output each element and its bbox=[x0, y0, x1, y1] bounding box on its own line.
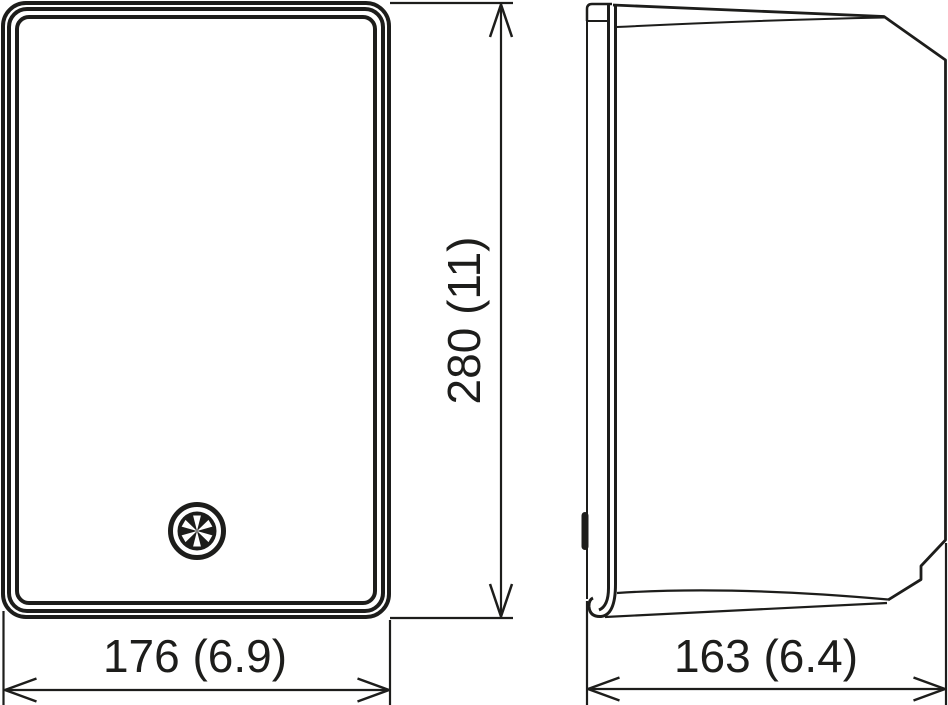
side-baffle-inner-edge bbox=[599, 5, 609, 610]
dimension-drawing: 280 (11) 176 (6.9) 163 (6.4) bbox=[0, 0, 948, 705]
side-baffle-outer-edge bbox=[589, 5, 616, 617]
depth-dimension: 163 (6.4) bbox=[587, 543, 946, 705]
side-view bbox=[582, 4, 946, 617]
side-cabinet-outline bbox=[613, 5, 946, 600]
side-bottom-upper-line bbox=[617, 590, 888, 599]
depth-dimension-label: 163 (6.4) bbox=[674, 630, 858, 682]
front-view bbox=[3, 3, 389, 617]
width-dimension-label: 176 (6.9) bbox=[103, 630, 287, 682]
side-bottom-lower-line bbox=[605, 603, 887, 617]
height-dimension-label: 280 (11) bbox=[438, 237, 490, 405]
width-dimension: 176 (6.9) bbox=[4, 611, 391, 705]
side-badge-bump-icon bbox=[582, 512, 589, 550]
height-dimension: 280 (11) bbox=[390, 3, 513, 618]
side-top-inner-line bbox=[617, 18, 886, 28]
dimension-drawing-page: 280 (11) 176 (6.9) 163 (6.4) bbox=[0, 0, 948, 705]
emblem-badge-icon bbox=[171, 505, 224, 558]
